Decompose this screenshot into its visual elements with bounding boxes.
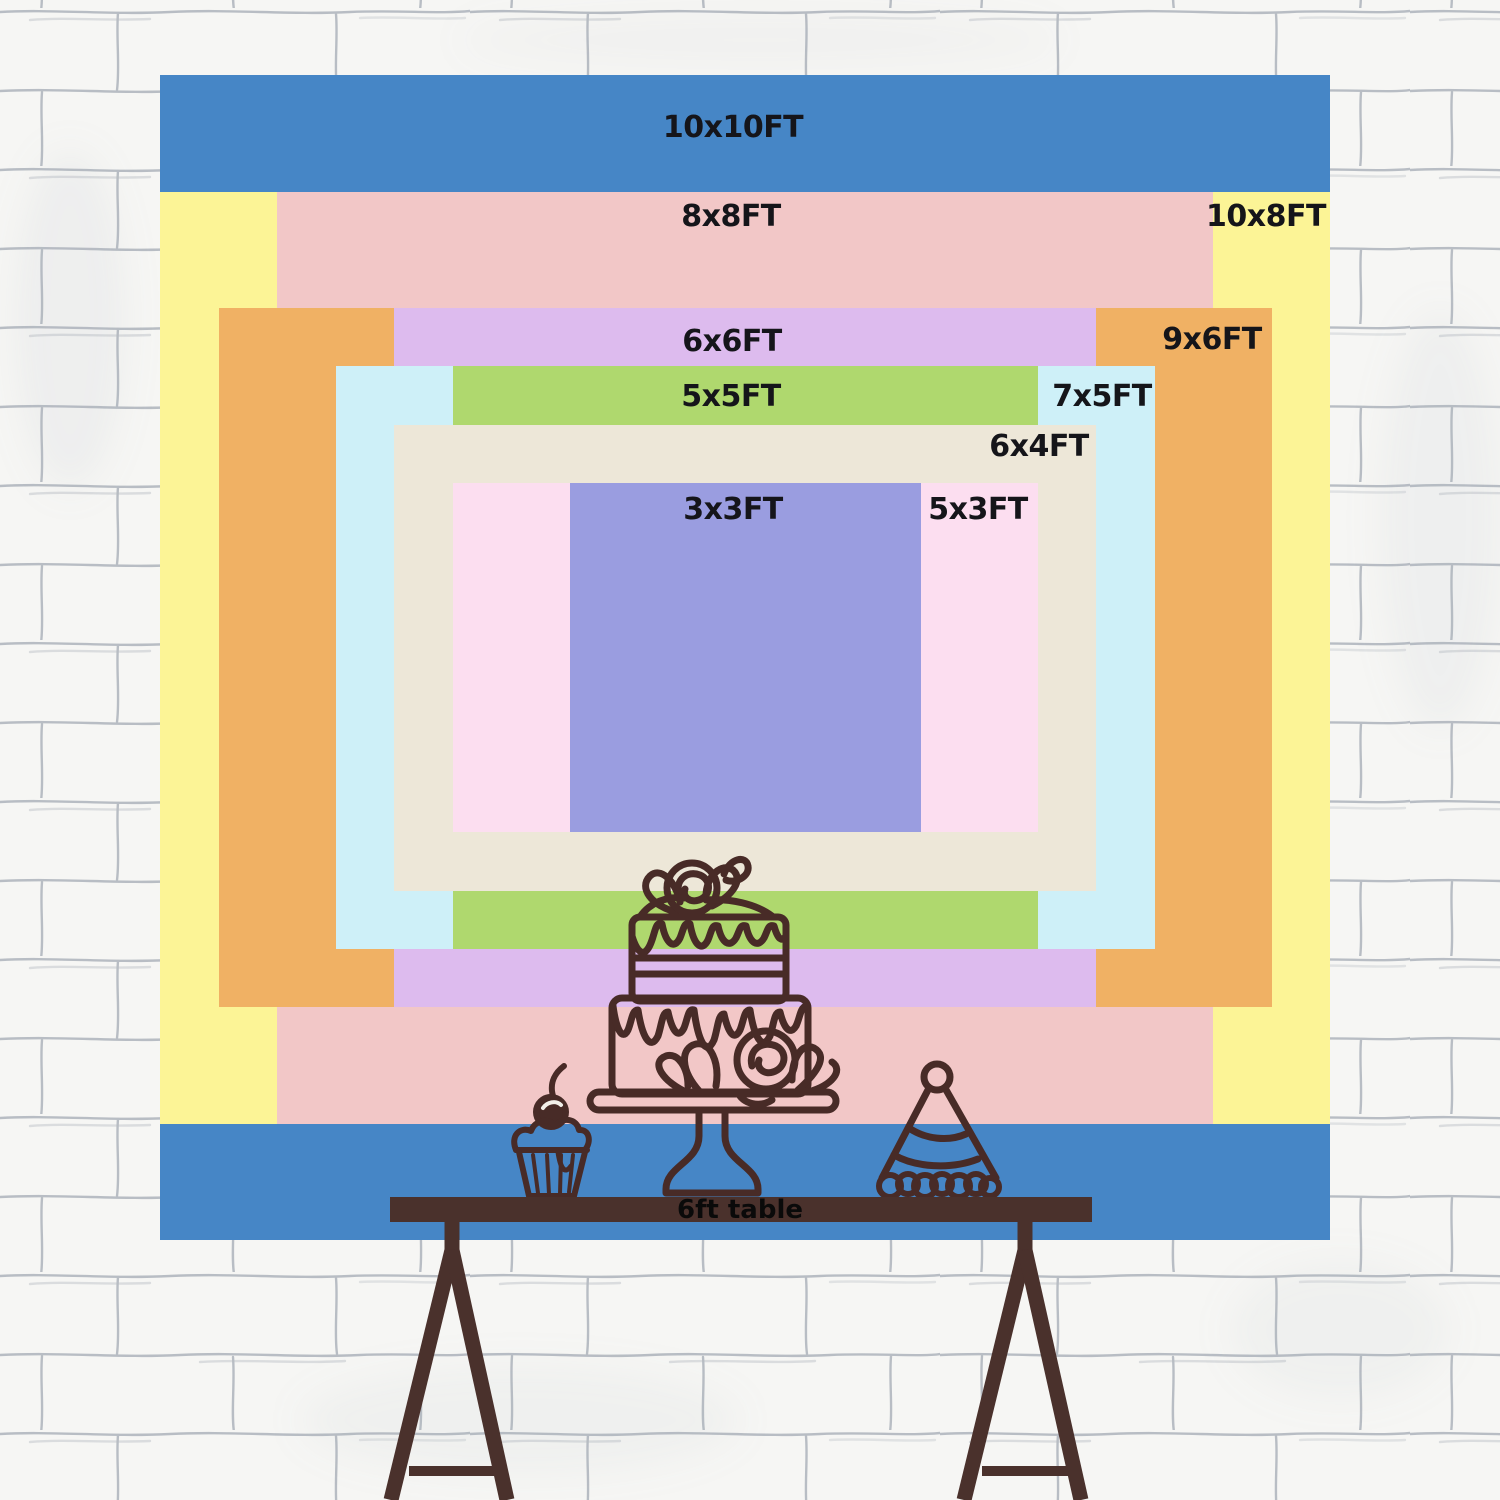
size-rect-3x3ft — [570, 483, 921, 832]
size-label-10x8ft: 10x8FT — [1206, 199, 1327, 234]
backdrop-size-chart: 10x10FT 10x8FT 8x8FT 9x6FT 6x6FT 7x5FT 5… — [0, 0, 1500, 1500]
size-label-6x4ft: 6x4FT — [989, 429, 1090, 464]
size-label-10x10ft: 10x10FT — [663, 110, 804, 145]
size-label-6x6ft: 6x6FT — [682, 324, 783, 359]
size-rectangles — [160, 75, 1330, 1240]
size-label-5x3ft: 5x3FT — [928, 492, 1029, 527]
table-label: 6ft table — [677, 1195, 803, 1225]
size-label-3x3ft: 3x3FT — [683, 492, 784, 527]
size-label-5x5ft: 5x5FT — [681, 379, 782, 414]
size-label-7x5ft: 7x5FT — [1052, 379, 1153, 414]
size-label-8x8ft: 8x8FT — [681, 199, 782, 234]
size-label-9x6ft: 9x6FT — [1162, 322, 1263, 357]
